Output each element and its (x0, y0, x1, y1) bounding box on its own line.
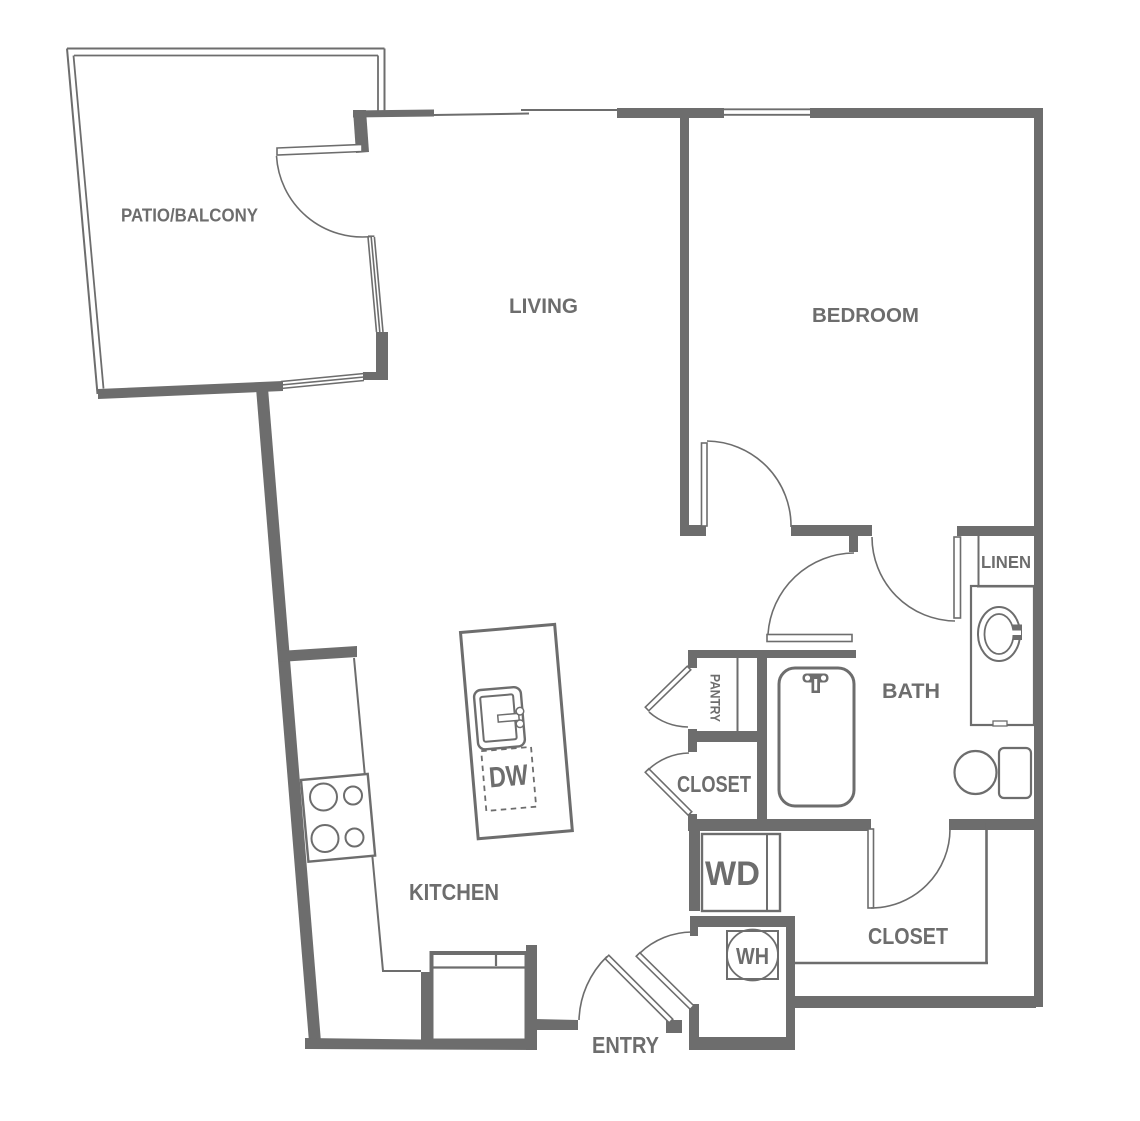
svg-text:LIVING: LIVING (509, 295, 578, 318)
svg-text:BEDROOM: BEDROOM (812, 304, 919, 327)
svg-text:LINEN: LINEN (981, 552, 1031, 572)
svg-text:WH: WH (736, 943, 769, 969)
svg-text:BATH: BATH (882, 679, 940, 703)
svg-text:ENTRY: ENTRY (592, 1032, 659, 1058)
svg-text:CLOSET: CLOSET (677, 771, 751, 797)
svg-text:CLOSET: CLOSET (868, 923, 948, 949)
svg-text:PANTRY: PANTRY (708, 674, 724, 723)
svg-text:WD: WD (705, 855, 760, 893)
svg-text:DW: DW (488, 759, 530, 794)
svg-text:KITCHEN: KITCHEN (409, 879, 499, 905)
svg-text:PATIO/BALCONY: PATIO/BALCONY (121, 206, 258, 226)
